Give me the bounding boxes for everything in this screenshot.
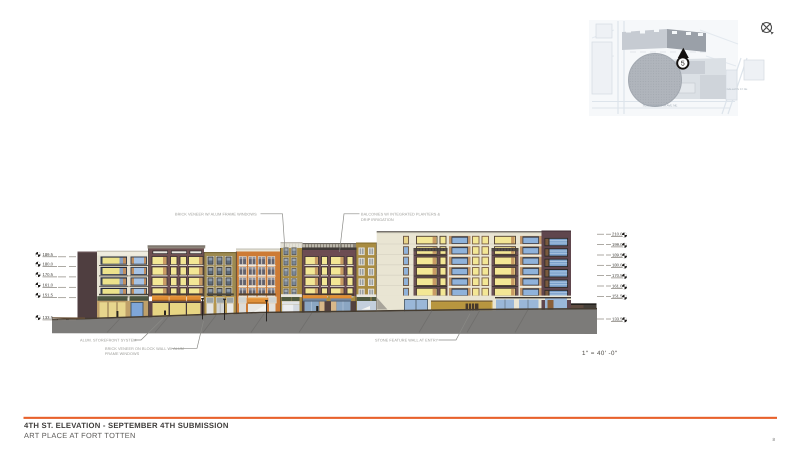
svg-text:180.0: 180.0 <box>43 262 54 267</box>
svg-text:151.5: 151.5 <box>43 293 54 298</box>
svg-text:133.5: 133.5 <box>43 315 54 320</box>
svg-text:ALUM. STOREFRONT SYSTEM: ALUM. STOREFRONT SYSTEM <box>80 339 137 343</box>
svg-text:5: 5 <box>681 61 685 68</box>
svg-text:FRAME WINDOWS: FRAME WINDOWS <box>105 352 140 356</box>
svg-text:210.0: 210.0 <box>612 232 623 237</box>
svg-text:1" = 40' -0": 1" = 40' -0" <box>582 350 618 357</box>
svg-text:189.5: 189.5 <box>612 252 623 257</box>
svg-text:161.0: 161.0 <box>612 283 623 288</box>
svg-text:151.5: 151.5 <box>612 294 623 299</box>
svg-text:4TH ST. ELEVATION - SEPTEMBER: 4TH ST. ELEVATION - SEPTEMBER 4TH SUBMIS… <box>24 421 229 430</box>
svg-text:170.5: 170.5 <box>43 272 54 277</box>
svg-text:189.5: 189.5 <box>43 252 54 257</box>
svg-text:DRIP IRRIGATION: DRIP IRRIGATION <box>361 218 394 222</box>
svg-text:199.0: 199.0 <box>612 242 623 247</box>
svg-text:BALCONIES W/ INTEGRATED PLANTE: BALCONIES W/ INTEGRATED PLANTERS & <box>361 213 440 217</box>
svg-text:STONE FEATURE WALL AT ENTRY: STONE FEATURE WALL AT ENTRY <box>375 339 439 343</box>
svg-text:170.5: 170.5 <box>612 273 623 278</box>
svg-text:BRICK VENEER ON BLOCK WALL W/: BRICK VENEER ON BLOCK WALL W/ ALUM <box>105 347 184 351</box>
svg-text:ART PLACE AT FORT TOTTEN: ART PLACE AT FORT TOTTEN <box>24 431 136 440</box>
svg-text:133.5: 133.5 <box>612 316 623 321</box>
svg-text:SOUTH DAKOTA AVE NE: SOUTH DAKOTA AVE NE <box>643 104 678 108</box>
svg-text:161.0: 161.0 <box>43 282 54 287</box>
svg-text:180.0: 180.0 <box>612 263 623 268</box>
svg-text:BRICK VENEER W/ ALUM FRAME WIN: BRICK VENEER W/ ALUM FRAME WINDOWS <box>175 213 257 217</box>
svg-text:GALLATIN ST NE: GALLATIN ST NE <box>727 88 748 91</box>
